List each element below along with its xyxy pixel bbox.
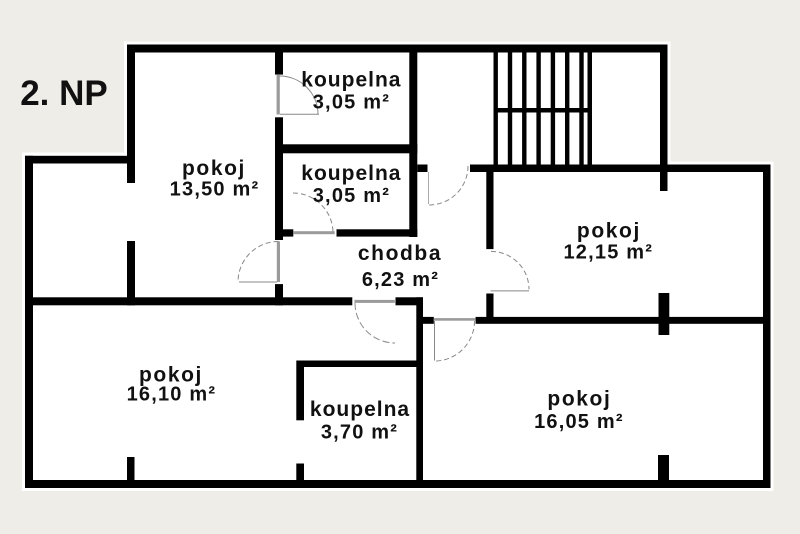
svg-text:16,05 m²: 16,05 m² (534, 411, 624, 433)
svg-text:2. NP: 2. NP (20, 74, 108, 113)
svg-text:6,23 m²: 6,23 m² (362, 269, 439, 291)
svg-text:3,70 m²: 3,70 m² (321, 422, 398, 444)
svg-text:3,05 m²: 3,05 m² (313, 185, 390, 207)
svg-text:pokoj: pokoj (182, 157, 246, 180)
svg-text:pokoj: pokoj (547, 388, 611, 411)
svg-text:chodba: chodba (358, 242, 442, 265)
svg-text:12,15 m²: 12,15 m² (563, 242, 653, 264)
svg-text:13,50 m²: 13,50 m² (170, 178, 260, 200)
svg-text:16,10 m²: 16,10 m² (127, 383, 217, 405)
svg-text:koupelna: koupelna (301, 162, 401, 185)
svg-text:koupelna: koupelna (301, 69, 401, 92)
svg-text:pokoj: pokoj (577, 220, 641, 243)
svg-text:3,05 m²: 3,05 m² (313, 92, 390, 114)
svg-text:koupelna: koupelna (310, 398, 410, 421)
